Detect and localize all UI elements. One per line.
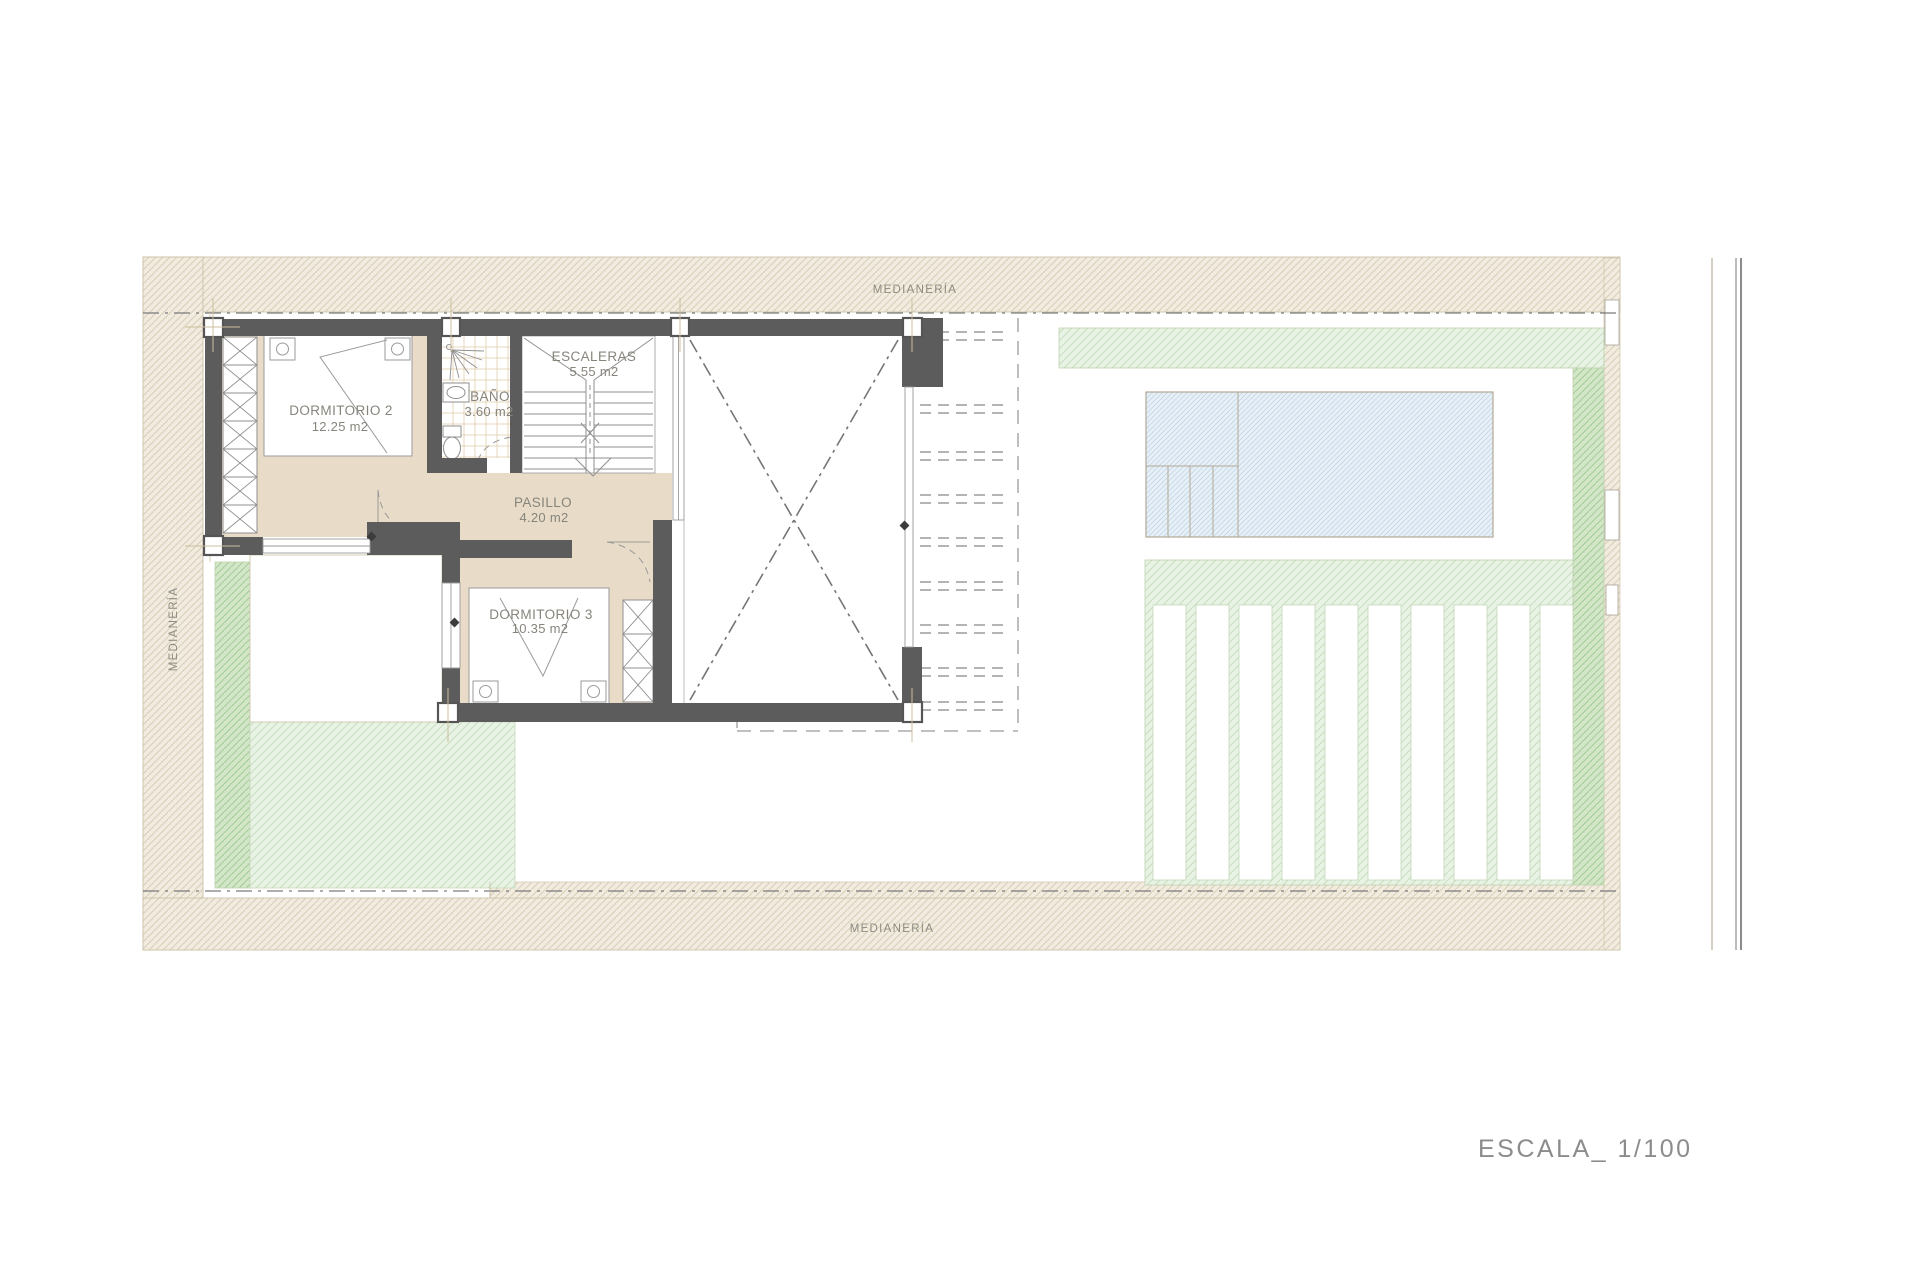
toilet-tank — [443, 426, 461, 437]
sink-basin — [447, 387, 465, 399]
bed-dormitorio-2 — [264, 334, 412, 456]
deck-plank — [1196, 605, 1229, 880]
deck-plank — [1282, 605, 1315, 880]
bed-3-pillow-right-detail — [588, 686, 600, 698]
garden-area — [250, 722, 515, 888]
wall-bano-south — [427, 458, 487, 473]
boundary-label-top: MEDIANERÍA — [873, 283, 958, 296]
room-label-dormitorio-3: DORMITORIO 3 — [489, 607, 593, 622]
wall-dorm3-west-upper — [442, 555, 460, 583]
wall-dorm2-bano — [427, 336, 442, 473]
wardrobe-dormitorio-2 — [223, 337, 257, 533]
right-boundary-gate-3 — [1606, 585, 1618, 615]
room-label-dormitorio-2: DORMITORIO 2 — [289, 403, 393, 418]
deck-plank — [1454, 605, 1487, 880]
deck-plank — [1153, 605, 1186, 880]
deck-area — [1145, 560, 1573, 885]
room-label-escaleras: ESCALERAS — [552, 349, 637, 364]
pool — [1146, 392, 1493, 537]
wall-junction-block — [367, 522, 460, 555]
bed-2-pillow-left-detail — [277, 343, 289, 355]
pool-water — [1146, 392, 1493, 537]
roof-terrace — [250, 555, 442, 722]
bed-3-pillow-left-detail — [480, 686, 492, 698]
green-band-right — [1573, 368, 1604, 885]
right-boundary-gate-2 — [1605, 490, 1619, 540]
green-strip-left — [215, 562, 250, 888]
toilet-bowl — [444, 437, 461, 459]
wardrobe-dormitorio-3 — [623, 600, 653, 702]
wall-dorm3-north — [460, 540, 572, 558]
wall-dorm3-east — [653, 520, 672, 703]
deck-plank — [1239, 605, 1272, 880]
room-area-pasillo: 4.20 m2 — [519, 510, 568, 525]
scale-label: ESCALA_ 1/100 — [1478, 1135, 1693, 1163]
room-label-pasillo: PASILLO — [514, 495, 572, 510]
bed-dormitorio-3 — [469, 588, 609, 704]
room-area-dormitorio-3: 10.35 m2 — [512, 621, 569, 636]
boundary-label-left: MEDIANERÍA — [167, 587, 180, 672]
floor-plan-drawing: MEDIANERÍA MEDIANERÍA MEDIANERÍA DORMITO… — [0, 0, 1920, 1280]
deck-plank — [1540, 605, 1573, 880]
wall-south — [438, 703, 922, 722]
deck-plank — [1368, 605, 1401, 880]
wall-west — [205, 336, 222, 555]
room-area-dormitorio-2: 12.25 m2 — [312, 419, 369, 434]
room-area-escaleras: 5.55 m2 — [569, 364, 618, 379]
room-area-bano: 3.60 m2 — [464, 404, 513, 419]
wall-north — [205, 319, 943, 336]
deck-plank — [1497, 605, 1530, 880]
window-void-east — [905, 387, 913, 647]
wall-dorm3-west-lower — [442, 668, 460, 703]
deck-plank — [1411, 605, 1444, 880]
room-label-bano: BAÑO — [470, 389, 510, 404]
boundary-label-bottom: MEDIANERÍA — [850, 922, 935, 935]
right-boundary-gate-1 — [1605, 300, 1619, 345]
green-strip-top — [1059, 328, 1604, 368]
floor-plan-page: MEDIANERÍA MEDIANERÍA MEDIANERÍA DORMITO… — [0, 0, 1920, 1280]
bed-2-pillow-right-detail — [392, 343, 404, 355]
deck-plank — [1325, 605, 1358, 880]
